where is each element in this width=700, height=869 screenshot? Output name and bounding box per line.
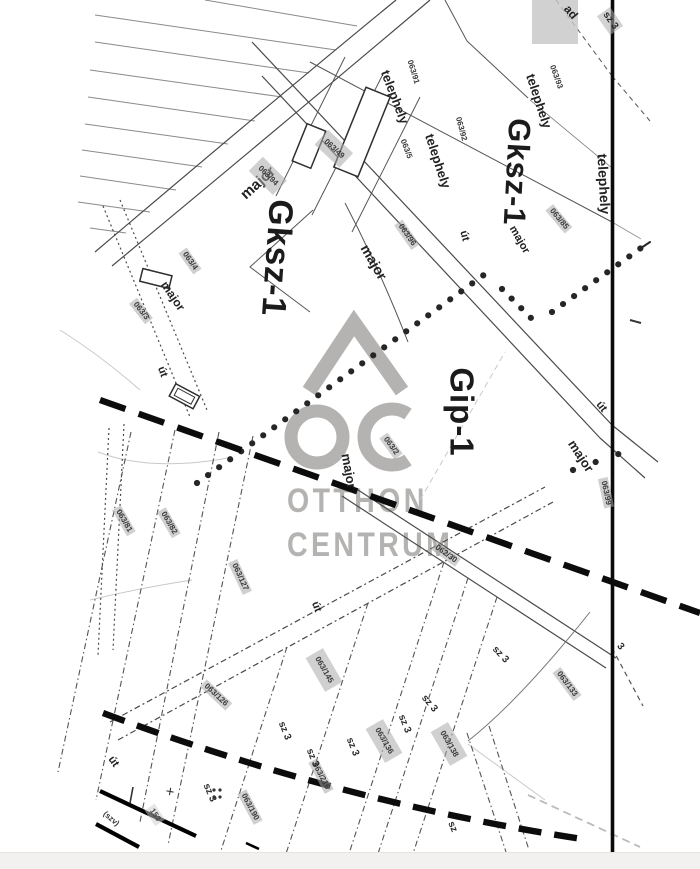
ut-label-3: út: [155, 365, 169, 379]
parcel-063-190: 063/190: [237, 789, 262, 825]
map-labels: Gksz-1Gksz-1Gip-1majormajormajormajormaj…: [0, 0, 700, 869]
sz3-label-6: sz 3: [396, 713, 412, 734]
ut-label-5: út: [106, 755, 121, 770]
sz3-label-4: sz 3: [276, 720, 292, 741]
railway-label-szv: (szv): [101, 810, 120, 828]
parcel-063-138: 063/138: [431, 722, 468, 766]
ut-label-4: út: [309, 600, 323, 614]
parcel-063-5: 063/5: [399, 138, 414, 160]
major-label-5: major: [566, 438, 596, 475]
parcel-062-30: 062/30: [431, 541, 462, 567]
parcel-063-145: 063/145: [306, 648, 343, 692]
plus-mark: +: [164, 784, 175, 800]
parcel-063-126: 063/126: [200, 679, 232, 710]
parcel-063-96: 063/96: [394, 220, 420, 251]
major-label-6: major: [507, 224, 532, 255]
map-scan: OTTHON CENTRUM: [0, 0, 700, 869]
parcel-063-133: 063/133: [552, 667, 581, 701]
zone-label-gip1: Gip-1: [446, 367, 479, 456]
sz3-label-9: 3: [614, 642, 625, 653]
sz3-label-5: sz 3: [344, 736, 360, 757]
parcel-063-2: 063/2: [379, 433, 402, 460]
parcel-063-93: 063/93: [548, 64, 564, 90]
parcel-063-82: 063/82: [157, 507, 181, 538]
parcel-063-4: 063/4: [178, 247, 201, 274]
zone-label-gksz1-west: Gksz-1: [256, 198, 298, 318]
parcel-063-136: 063/136: [366, 719, 403, 763]
sz3-label-7: sz 3: [304, 747, 320, 768]
scan-edge-strip: [0, 852, 700, 869]
parcel-063-92: 063/92: [454, 116, 468, 142]
major-label-3: major: [159, 279, 187, 313]
sz3-label-8: sz 3: [201, 782, 218, 803]
marker-153: 153: [145, 804, 166, 827]
zone-label-gksz1-east: Gksz-1: [499, 117, 536, 226]
major-label-2: major: [358, 242, 389, 282]
sz-label-10: sz: [445, 820, 458, 834]
major-label-4: major: [340, 452, 359, 489]
ut-label-2: út: [593, 400, 608, 415]
parcel-063-81: 063/81: [112, 505, 136, 536]
parcel-063-99: 063/99: [598, 477, 614, 509]
telephely-label-2: telephely: [423, 132, 453, 190]
telephely-label-1: telephely: [379, 68, 411, 125]
parcel-063-91: 063/91: [406, 59, 421, 85]
sz3-label-2: sz 3: [490, 645, 510, 666]
parcel-063-127: 063/127: [228, 559, 252, 595]
parcel-063-49: 063/49: [315, 130, 354, 168]
parcel-063-3: 063/3: [129, 298, 153, 325]
sz3-label-3: sz 3: [419, 694, 439, 715]
ut-label-1: út: [457, 230, 470, 243]
road-name-label: ad: [562, 3, 580, 21]
parcel-063-85: 063/85: [545, 204, 572, 234]
telephely-label-4: telephely: [595, 153, 612, 214]
sz3-label-1: sz 3: [597, 7, 623, 35]
